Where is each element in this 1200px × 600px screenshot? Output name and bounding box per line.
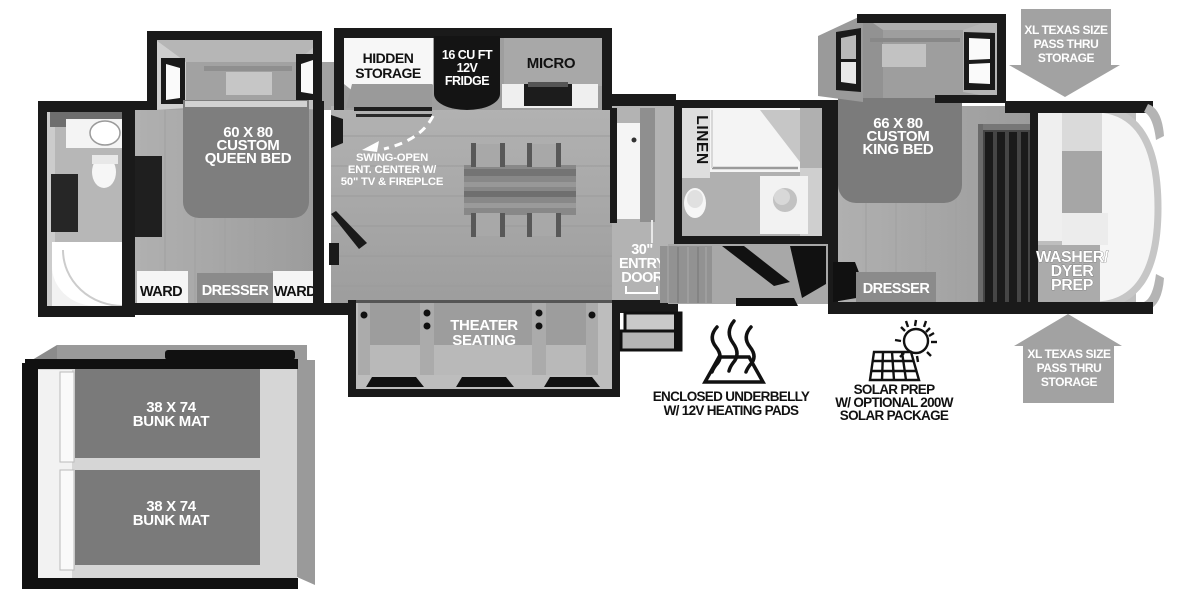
svg-text:FRIDGE: FRIDGE: [445, 74, 489, 88]
svg-text:PASS THRU: PASS THRU: [1034, 37, 1099, 51]
svg-text:STORAGE: STORAGE: [1041, 375, 1098, 389]
svg-text:DRESSER: DRESSER: [202, 283, 270, 299]
svg-text:BUNK MAT: BUNK MAT: [133, 512, 210, 529]
svg-text:50" TV & FIREPLCE: 50" TV & FIREPLCE: [341, 176, 444, 188]
svg-text:DRESSER: DRESSER: [863, 281, 931, 297]
svg-text:KING BED: KING BED: [863, 141, 934, 158]
svg-text:WARD: WARD: [140, 284, 182, 300]
svg-text:STORAGE: STORAGE: [1038, 51, 1095, 65]
svg-text:XL TEXAS SIZE: XL TEXAS SIZE: [1024, 23, 1108, 37]
svg-text:DOOR: DOOR: [621, 270, 664, 286]
svg-text:WARD: WARD: [274, 284, 316, 300]
svg-text:PASS THRU: PASS THRU: [1037, 361, 1102, 375]
svg-text:SOLAR PACKAGE: SOLAR PACKAGE: [840, 408, 949, 423]
svg-text:MICRO: MICRO: [527, 55, 576, 72]
svg-text:XL TEXAS SIZE: XL TEXAS SIZE: [1027, 347, 1111, 361]
svg-text:BUNK MAT: BUNK MAT: [133, 413, 210, 430]
svg-text:W/ 12V HEATING PADS: W/ 12V HEATING PADS: [664, 403, 799, 418]
svg-text:QUEEN BED: QUEEN BED: [205, 150, 292, 167]
svg-text:LINEN: LINEN: [693, 115, 710, 165]
svg-text:HIDDEN: HIDDEN: [363, 50, 414, 66]
svg-text:ENT. CENTER W/: ENT. CENTER W/: [348, 164, 437, 176]
svg-text:ENCLOSED UNDERBELLY: ENCLOSED UNDERBELLY: [653, 389, 810, 404]
svg-text:SWING-OPEN: SWING-OPEN: [356, 152, 428, 164]
svg-text:PREP: PREP: [1051, 277, 1094, 294]
svg-text:12V: 12V: [457, 61, 479, 75]
svg-text:16 CU FT: 16 CU FT: [442, 48, 493, 62]
svg-text:STORAGE: STORAGE: [355, 65, 421, 81]
svg-text:SEATING: SEATING: [452, 332, 515, 349]
